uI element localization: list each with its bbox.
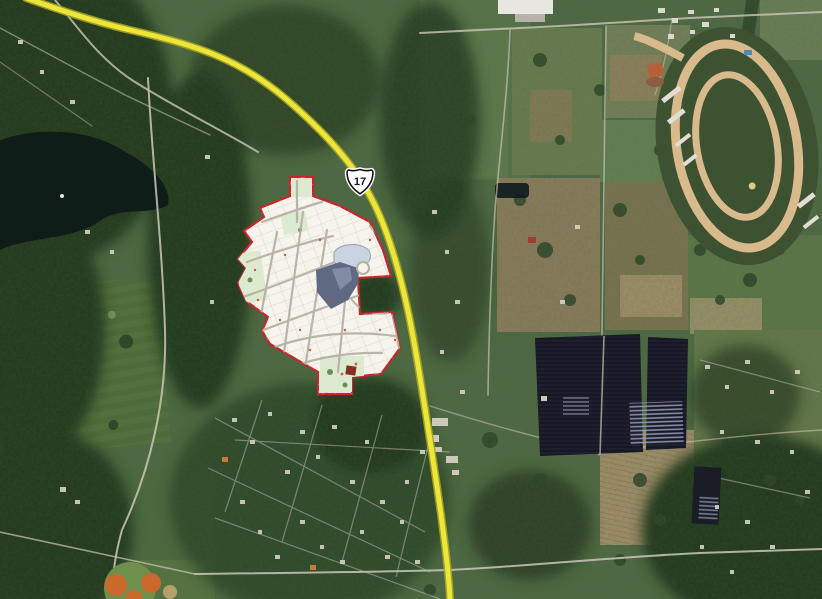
satellite-map-view[interactable]: 17 [0, 0, 822, 599]
amenity-building [345, 365, 356, 375]
lake-dock [60, 194, 64, 198]
pool [744, 50, 752, 55]
track-clubhouse [647, 63, 664, 78]
route-shield-number: 17 [354, 176, 366, 188]
red-roof-farmhouse [528, 237, 536, 243]
small-pond [495, 183, 529, 198]
satellite-map-canvas[interactable]: 17 [0, 0, 822, 599]
cul-de-sac [357, 262, 369, 274]
